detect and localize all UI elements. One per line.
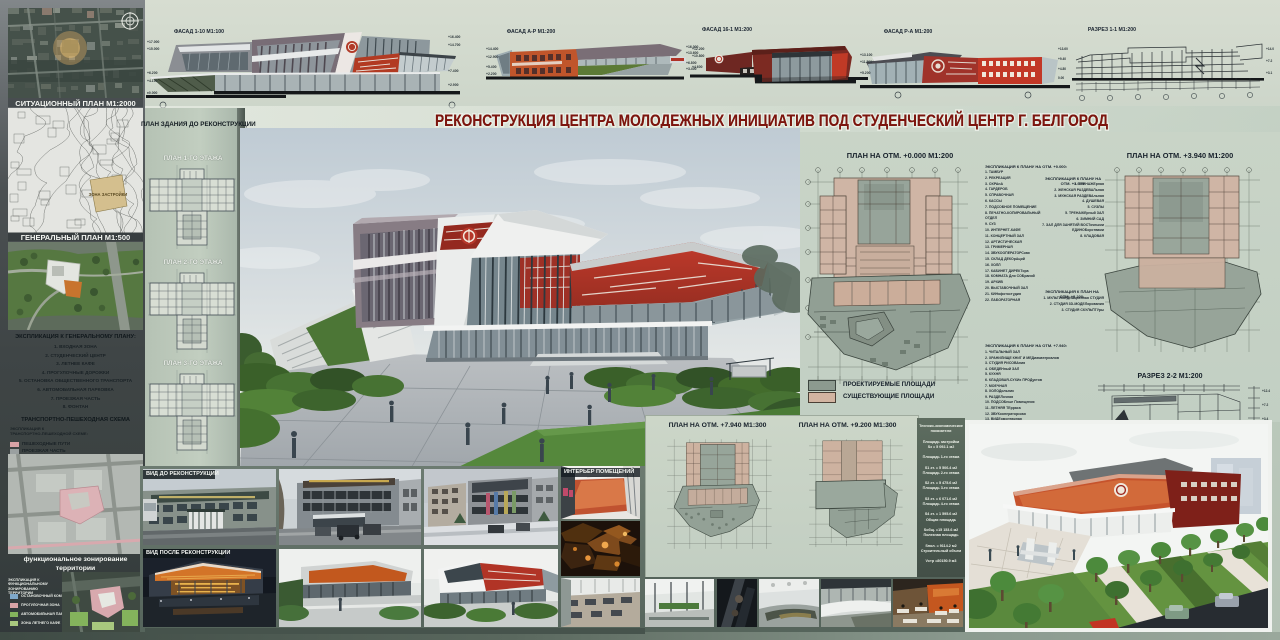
svg-text:+12.4: +12.4 [1262, 389, 1270, 393]
svg-text:+7.2: +7.2 [1262, 403, 1269, 407]
svg-text:ЗОНА ЗАСТРОЙКИ: ЗОНА ЗАСТРОЙКИ [89, 192, 128, 197]
